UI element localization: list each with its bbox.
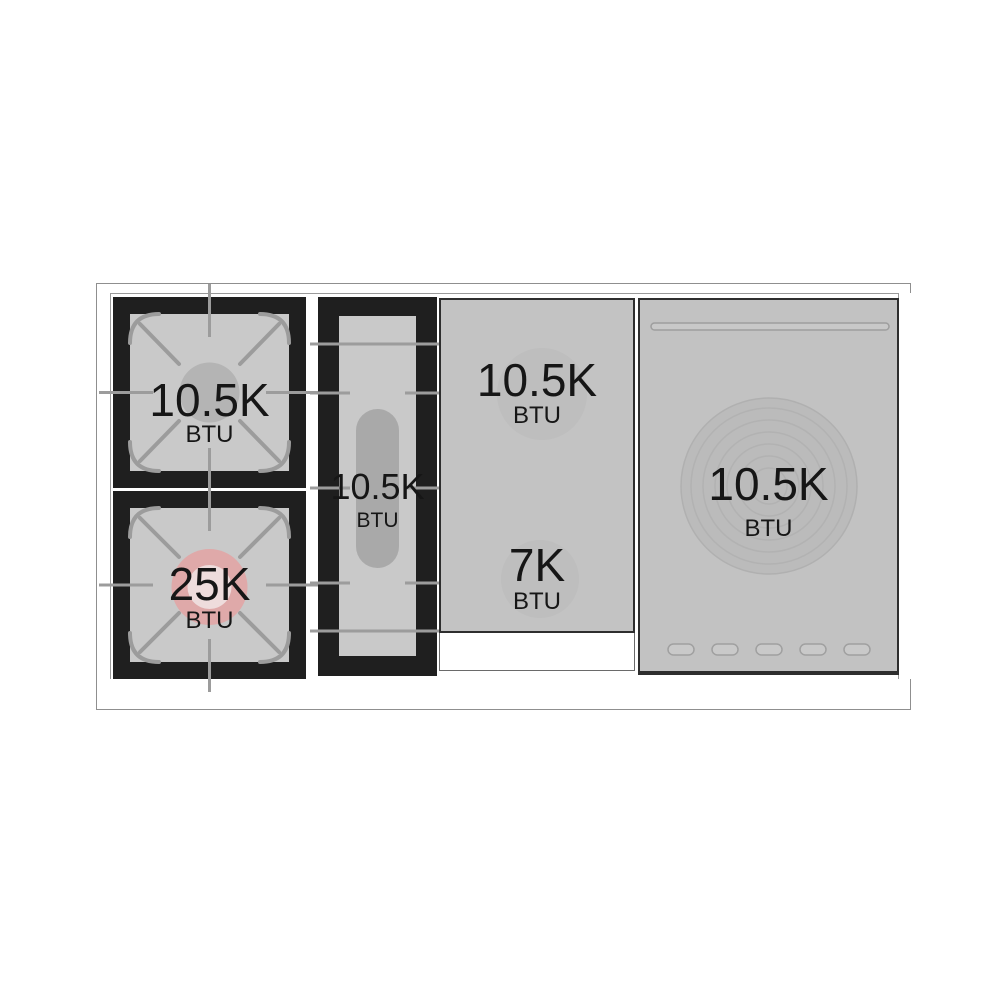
control-pill <box>756 644 782 655</box>
burner-power-label: 25K <box>113 561 306 607</box>
cooktop-diagram: 10.5K BTU 25K <box>0 0 1000 1000</box>
burner-grate-front-left: 25K BTU <box>113 491 306 679</box>
burner-unit-label: BTU <box>441 590 633 614</box>
burner-grate-rear-left: 10.5K BTU <box>113 297 306 488</box>
control-pills <box>668 644 870 655</box>
burner-power-label: 10.5K <box>441 357 633 403</box>
oval-burner-grate: 10.5K BTU <box>318 297 437 676</box>
burner-unit-label: BTU <box>318 510 437 531</box>
burner-power-label: 10.5K <box>640 461 897 507</box>
right-rail <box>898 293 911 679</box>
back-rail <box>97 284 910 294</box>
burner-power-label: 10.5K <box>318 469 437 505</box>
burner-unit-label: BTU <box>113 423 306 447</box>
control-pill <box>800 644 826 655</box>
front-trim <box>97 679 910 709</box>
burner-power-label: 7K <box>441 542 633 588</box>
range-top-outline: 10.5K BTU 25K <box>96 283 911 710</box>
griddle-front-tray <box>439 633 635 671</box>
burner-power-label: 10.5K <box>113 377 306 423</box>
griddle-panel-column: 10.5K BTU 7K BTU <box>439 298 635 671</box>
handle-bar <box>651 323 889 330</box>
burner-unit-label: BTU <box>441 404 633 428</box>
control-pill <box>712 644 738 655</box>
left-rail <box>97 293 111 679</box>
burner-unit-label: BTU <box>640 517 897 541</box>
control-pill <box>668 644 694 655</box>
burner-unit-label: BTU <box>113 609 306 633</box>
griddle-panel: 10.5K BTU 7K BTU <box>439 298 635 633</box>
control-pill <box>844 644 870 655</box>
right-element-panel: 10.5K BTU <box>638 298 899 675</box>
